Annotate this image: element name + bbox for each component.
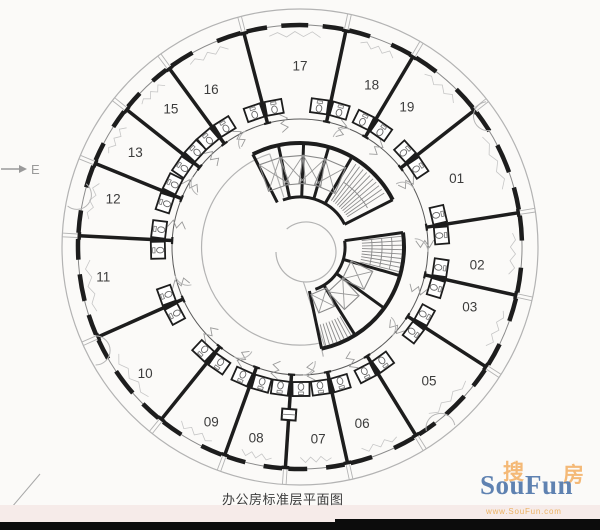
watermark-url: www.SouFun.com bbox=[486, 507, 562, 516]
toilet-cubicle bbox=[151, 242, 165, 259]
room-label-19: 19 bbox=[399, 100, 414, 115]
window-sill-squiggle bbox=[109, 128, 127, 154]
window-sill-squiggle bbox=[425, 74, 454, 103]
toilet-cubicle bbox=[151, 220, 167, 239]
toilet-cubicle bbox=[292, 382, 309, 396]
plan-caption: 办公房标准层平面图 bbox=[222, 489, 344, 508]
atrium-notch bbox=[276, 222, 336, 282]
window-sill-squiggle bbox=[509, 233, 516, 274]
east-arrow-icon bbox=[19, 165, 27, 173]
room-label-13: 13 bbox=[128, 145, 143, 160]
door-swing-arc bbox=[415, 239, 428, 252]
window-sill-squiggle bbox=[86, 260, 97, 311]
entry-break-squiggle bbox=[168, 220, 186, 229]
elevator-icon bbox=[328, 278, 359, 309]
toilet-cubicle bbox=[330, 374, 350, 392]
toilet-cubicle bbox=[311, 379, 330, 395]
toilet-cubicle bbox=[264, 99, 283, 116]
room-label-10: 10 bbox=[138, 366, 153, 381]
toilet-cubicle bbox=[329, 102, 349, 120]
entry-break-squiggle bbox=[204, 152, 219, 167]
toilet-cubicle bbox=[430, 205, 447, 225]
room-label-09: 09 bbox=[204, 414, 219, 429]
window-sill-squiggle bbox=[269, 32, 320, 38]
room-label-05: 05 bbox=[421, 374, 436, 389]
corridor-ring bbox=[172, 119, 428, 375]
entry-break-squiggle bbox=[280, 115, 289, 133]
door-swing-arc bbox=[303, 361, 315, 375]
entry-break-squiggle bbox=[410, 284, 427, 295]
entry-break-squiggle bbox=[390, 320, 405, 334]
window-sill-squiggle bbox=[300, 456, 331, 462]
room-label-17: 17 bbox=[292, 59, 307, 74]
room-label-03: 03 bbox=[462, 299, 477, 314]
window-sill-squiggle bbox=[87, 184, 99, 220]
outer-ring bbox=[62, 9, 538, 485]
direction-label: E bbox=[31, 162, 40, 177]
direction-marker: E bbox=[1, 162, 40, 177]
core-upper bbox=[253, 143, 393, 224]
toilet-cubicle bbox=[434, 226, 449, 244]
toilet-cubicle bbox=[244, 103, 265, 122]
room-label-16: 16 bbox=[204, 82, 219, 97]
window-sill-squiggle bbox=[482, 137, 504, 189]
entry-break-squiggle bbox=[182, 180, 198, 193]
room-label-01: 01 bbox=[449, 171, 464, 186]
toilet-cubicle bbox=[271, 379, 290, 395]
toilet-cubicle bbox=[432, 258, 448, 277]
room-label-02: 02 bbox=[470, 258, 485, 273]
toilet-cubicle bbox=[252, 375, 272, 393]
balcony-fins bbox=[62, 14, 535, 485]
watermark-brand: SouFun bbox=[480, 470, 573, 501]
window-sill-squiggle bbox=[190, 47, 228, 65]
window-sill-squiggle bbox=[361, 42, 393, 58]
room-label-11: 11 bbox=[96, 270, 110, 285]
room-label-18: 18 bbox=[364, 78, 379, 93]
entrance-shaft-box bbox=[282, 409, 297, 421]
window-sill-squiggle bbox=[242, 449, 272, 460]
soufun-watermark: 搜 房 SouFun www.SouFun.com bbox=[470, 448, 600, 523]
core-lower bbox=[309, 233, 404, 349]
room-label-07: 07 bbox=[311, 432, 326, 447]
room-label-06: 06 bbox=[355, 416, 370, 431]
toilet-cubicle bbox=[156, 193, 175, 213]
room-label-08: 08 bbox=[249, 431, 264, 446]
floor-plan-page: 0203050607080910111213151617181901E 办公房标… bbox=[0, 0, 600, 530]
facade-ring bbox=[78, 25, 522, 469]
room-label-15: 15 bbox=[163, 102, 178, 117]
toilet-cubicle bbox=[310, 98, 329, 114]
corridor-doors bbox=[168, 115, 434, 381]
toilet-cubicle bbox=[427, 278, 445, 298]
room-label-12: 12 bbox=[106, 192, 121, 207]
entry-break-squiggle bbox=[204, 328, 219, 342]
entry-break-squiggle bbox=[271, 361, 280, 379]
entry-break-squiggle bbox=[369, 139, 383, 154]
